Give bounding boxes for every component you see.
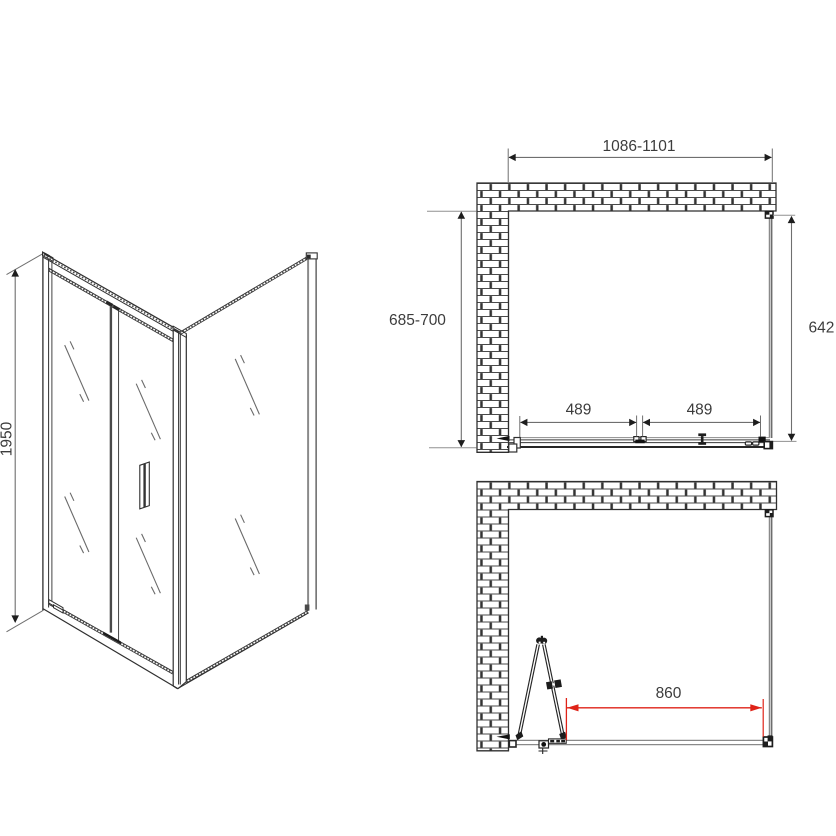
svg-text:489: 489	[687, 402, 713, 419]
svg-text:489: 489	[566, 402, 592, 419]
svg-text:1950: 1950	[0, 421, 16, 456]
svg-text:642: 642	[809, 320, 835, 337]
svg-text:860: 860	[656, 685, 682, 702]
svg-text:685-700: 685-700	[389, 312, 446, 329]
svg-text:1086-1101: 1086-1101	[603, 138, 676, 155]
